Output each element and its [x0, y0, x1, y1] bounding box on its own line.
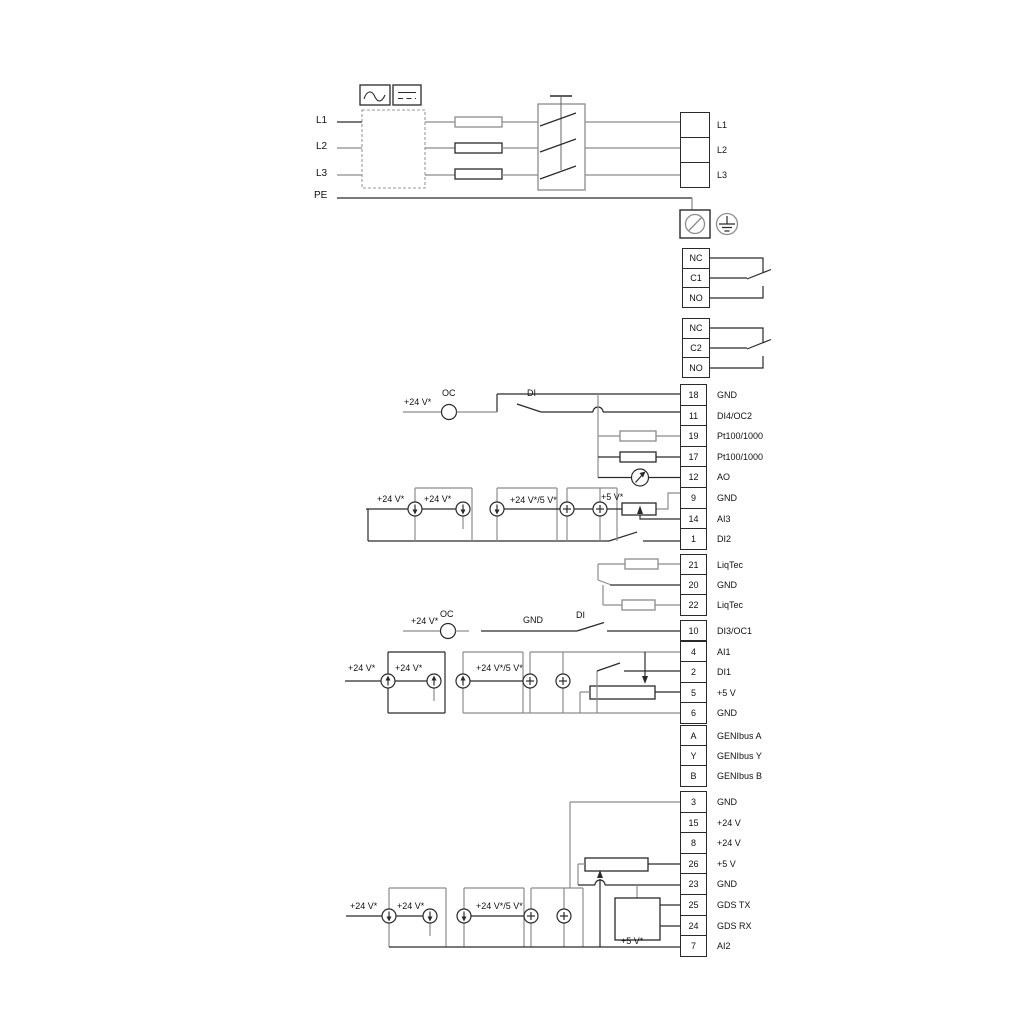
terminal-label: GDS RX: [717, 921, 752, 931]
terminal-row: 18GND: [680, 384, 707, 406]
gnd-label: GND: [523, 616, 543, 625]
terminal-4: 4: [680, 641, 707, 663]
terminal-row: 8+24 V: [680, 832, 707, 854]
resistor-liqtec-a: [625, 559, 658, 569]
voltage-source-icon: [524, 909, 538, 923]
terminal-c1: C1: [682, 268, 710, 289]
plus24v-label: +24 V*: [397, 902, 424, 911]
terminal-20: 20: [680, 574, 707, 596]
terminal-label: AI3: [717, 514, 731, 524]
plus24v-label: +24 V*: [424, 495, 451, 504]
plus24v-label: +24 V*: [404, 398, 431, 407]
terminal-row: 19Pt100/1000: [680, 425, 707, 447]
relay2-contact: [710, 328, 771, 368]
terminal-row: 15+24 V: [680, 812, 707, 834]
terminal-row: 10DI3/OC1: [680, 620, 707, 641]
terminal-label: +5 V: [717, 688, 736, 698]
terminal-no1: NO: [682, 287, 710, 308]
diagram-linework: [0, 0, 1024, 1024]
pe-input-label: PE: [314, 191, 327, 201]
terminal-label: GND: [717, 580, 737, 590]
terminal-b: B: [680, 765, 707, 787]
current-source-icon: [423, 909, 437, 923]
di2-switch-contact: [609, 532, 637, 541]
plus5v-label: +5 V*: [601, 493, 623, 502]
terminal-row: 22LiqTec: [680, 594, 707, 616]
terminal-label: GND: [717, 493, 737, 503]
terminal-label: Pt100/1000: [717, 431, 763, 441]
terminal-row: YGENIbus Y: [680, 745, 707, 767]
terminal-7: 7: [680, 935, 707, 957]
terminal-23: 23: [680, 873, 707, 895]
terminal-label: +24 V: [717, 838, 741, 848]
terminal-15: 15: [680, 812, 707, 834]
io-terminal-strip-b: 4AI1 2DI1 5+5 V 6GND: [680, 641, 707, 724]
terminal-21: 21: [680, 554, 707, 576]
terminal-row: C2: [682, 338, 710, 359]
open-collector-icon: [442, 405, 457, 420]
voltage-source-icon: [557, 909, 571, 923]
plus24v-5v-label: +24 V*/5 V*: [510, 496, 557, 505]
plus24v-label: +24 V*: [350, 902, 377, 911]
emc-filter-box: [362, 110, 425, 188]
terminal-label: GND: [717, 708, 737, 718]
terminal-row: L2: [680, 137, 710, 163]
terminal-8: 8: [680, 832, 707, 854]
terminal-24: 24: [680, 915, 707, 937]
terminal-25: 25: [680, 894, 707, 916]
plus24v-5v-label: +24 V*/5 V*: [476, 902, 523, 911]
ai1-pot-di1-wiring: [580, 652, 680, 713]
l3-input-label: L3: [316, 169, 327, 179]
terminal-y: Y: [680, 745, 707, 767]
plus24v-5v-label: +24 V*/5 V*: [476, 664, 523, 673]
terminal-row: 4AI1: [680, 641, 707, 663]
terminal-row: 6GND: [680, 702, 707, 724]
terminal-12: 12: [680, 466, 707, 488]
open-collector-icon: [441, 624, 456, 639]
resistor-pt100-a: [620, 431, 656, 441]
plus24v-label: +24 V*: [348, 664, 375, 673]
terminal-label: GENIbus B: [717, 771, 762, 781]
terminal-label: L2: [717, 145, 727, 155]
current-source-icon: [382, 909, 396, 923]
terminal-row: 5+5 V: [680, 682, 707, 704]
protective-earth-icon: [717, 214, 738, 235]
terminal-label: LiqTec: [717, 600, 743, 610]
terminal-row: 26+5 V: [680, 853, 707, 875]
terminal-label: DI3/OC1: [717, 626, 752, 636]
potentiometer-ai1: [590, 686, 655, 699]
genibus-terminal-strip: AGENIbus A YGENIbus Y BGENIbus B: [680, 725, 707, 787]
potentiometer-ai2: [585, 858, 648, 871]
terminal-19: 19: [680, 425, 707, 447]
terminal-22: 22: [680, 594, 707, 616]
terminal-row: 21LiqTec: [680, 554, 707, 576]
di-switch-contact: [577, 623, 604, 632]
io-terminal-strip-c: 3GND 15+24 V 8+24 V 26+5 V 23GND 25GDS T…: [680, 791, 707, 957]
terminal-row: 7AI2: [680, 935, 707, 957]
terminal-a: A: [680, 725, 707, 747]
terminal-l2: [680, 137, 710, 163]
terminal-label: Pt100/1000: [717, 452, 763, 462]
pe-wiring: [337, 198, 738, 238]
terminal-row: L1: [680, 112, 710, 138]
gds-module: [615, 898, 660, 940]
terminal-row: NC: [682, 318, 710, 339]
wiring-diagram: L1 L2 L3 PE L1 L2 L3 NC C1 NO NC C2 NO 1…: [0, 0, 1024, 1024]
main-switch: [538, 96, 585, 190]
terminal-label: GDS TX: [717, 900, 750, 910]
dc-icon: [393, 85, 421, 105]
terminal-3: 3: [680, 791, 707, 813]
terminal-6: 6: [680, 702, 707, 724]
resistor-liqtec-b: [622, 600, 655, 610]
di1-switch-contact: [597, 663, 620, 671]
terminal-label: GND: [717, 879, 737, 889]
terminal-row: L3: [680, 162, 710, 188]
di3-terminal-strip: 10DI3/OC1: [680, 620, 707, 641]
terminal-row: 24GDS RX: [680, 915, 707, 937]
terminal-no2: NO: [682, 357, 710, 378]
relay1-terminal-strip: NC C1 NO: [682, 248, 710, 308]
ac-icon: [360, 85, 390, 105]
di-label: DI: [527, 389, 536, 398]
l2-input-label: L2: [316, 142, 327, 152]
terminal-1: 1: [680, 528, 707, 550]
oc-label: OC: [440, 610, 454, 619]
terminal-label: LiqTec: [717, 560, 743, 570]
terminal-row: 12AO: [680, 466, 707, 488]
terminal-row: 17Pt100/1000: [680, 446, 707, 468]
terminal-row: 11DI4/OC2: [680, 405, 707, 427]
liqtec-wiring: [598, 559, 680, 610]
terminal-row: 14AI3: [680, 508, 707, 530]
terminal-label: L1: [717, 120, 727, 130]
terminal-row: NO: [682, 357, 710, 378]
terminal-row: AGENIbus A: [680, 725, 707, 747]
pt100-wiring: [598, 431, 680, 462]
terminal-nc1: NC: [682, 248, 710, 269]
fuse-l3: [455, 169, 502, 179]
analog-output-wiring: [598, 469, 680, 486]
converter-icons: [360, 85, 421, 105]
terminal-label: GENIbus A: [717, 731, 762, 741]
voltage-source-icon: [556, 674, 570, 688]
terminal-nc2: NC: [682, 318, 710, 339]
ai3-source-chain: [366, 488, 622, 541]
terminal-label: +5 V: [717, 859, 736, 869]
terminal-label: AI2: [717, 941, 731, 951]
di-switch-contact: [517, 404, 541, 412]
terminal-row: 20GND: [680, 574, 707, 596]
terminal-row: 3GND: [680, 791, 707, 813]
liqtec-terminal-strip: 21LiqTec 20GND 22LiqTec: [680, 554, 707, 616]
terminal-l1: [680, 112, 710, 138]
terminal-l3: [680, 162, 710, 188]
terminal-14: 14: [680, 508, 707, 530]
voltage-source-icon: [523, 674, 537, 688]
voltage-source-icon: [560, 502, 574, 516]
current-source-icon: [490, 502, 504, 516]
terminal-row: NO: [682, 287, 710, 308]
relay2-terminal-strip: NC C2 NO: [682, 318, 710, 378]
terminal-row: NC: [682, 248, 710, 269]
mains-wires: [337, 117, 680, 179]
terminal-row: C1: [682, 268, 710, 289]
current-source-icon: [427, 674, 441, 688]
resistor-pt100-b: [620, 452, 656, 462]
current-source-icon: [456, 502, 470, 516]
di-label: DI: [576, 611, 585, 620]
terminal-row: BGENIbus B: [680, 765, 707, 787]
terminal-row: 23GND: [680, 873, 707, 895]
terminal-label: DI1: [717, 667, 731, 677]
l1-input-label: L1: [316, 116, 327, 126]
voltage-source-icon: [593, 502, 607, 516]
terminal-5: 5: [680, 682, 707, 704]
plus24v-label: +24 V*: [377, 495, 404, 504]
terminal-label: L3: [717, 170, 727, 180]
oc-label: OC: [442, 389, 456, 398]
di4-oc2-wiring: [403, 394, 680, 478]
terminal-11: 11: [680, 405, 707, 427]
terminal-label: GND: [717, 797, 737, 807]
current-source-icon: [457, 909, 471, 923]
terminal-label: GND: [717, 390, 737, 400]
terminal-row: 9GND: [680, 487, 707, 509]
terminal-row: 25GDS TX: [680, 894, 707, 916]
terminal-label: DI4/OC2: [717, 411, 752, 421]
terminal-18: 18: [680, 384, 707, 406]
terminal-label: AO: [717, 472, 730, 482]
terminal-label: AI1: [717, 647, 731, 657]
plus5v-label: +5 V*: [621, 937, 643, 946]
terminal-label: +24 V: [717, 818, 741, 828]
fuse-l2: [455, 143, 502, 153]
fuse-l1: [455, 117, 502, 127]
ai1-source-chain: [345, 652, 680, 713]
current-source-icon: [456, 674, 470, 688]
terminal-26: 26: [680, 853, 707, 875]
ai2-pot-gds-wiring: [578, 858, 680, 947]
plus24v-label: +24 V*: [395, 664, 422, 673]
terminal-label: DI2: [717, 534, 731, 544]
terminal-row: 1DI2: [680, 528, 707, 550]
mains-terminal-strip: L1 L2 L3: [680, 112, 710, 188]
terminal-10: 10: [680, 620, 707, 641]
relay1-contact: [710, 258, 771, 298]
terminal-17: 17: [680, 446, 707, 468]
current-source-icon: [408, 502, 422, 516]
terminal-2: 2: [680, 661, 707, 683]
current-source-icon: [381, 674, 395, 688]
terminal-row: 2DI1: [680, 661, 707, 683]
plus24v-label: +24 V*: [411, 617, 438, 626]
io-terminal-strip-a: 18GND 11DI4/OC2 19Pt100/1000 17Pt100/100…: [680, 384, 707, 550]
terminal-9: 9: [680, 487, 707, 509]
terminal-label: GENIbus Y: [717, 751, 762, 761]
terminal-c2: C2: [682, 338, 710, 359]
